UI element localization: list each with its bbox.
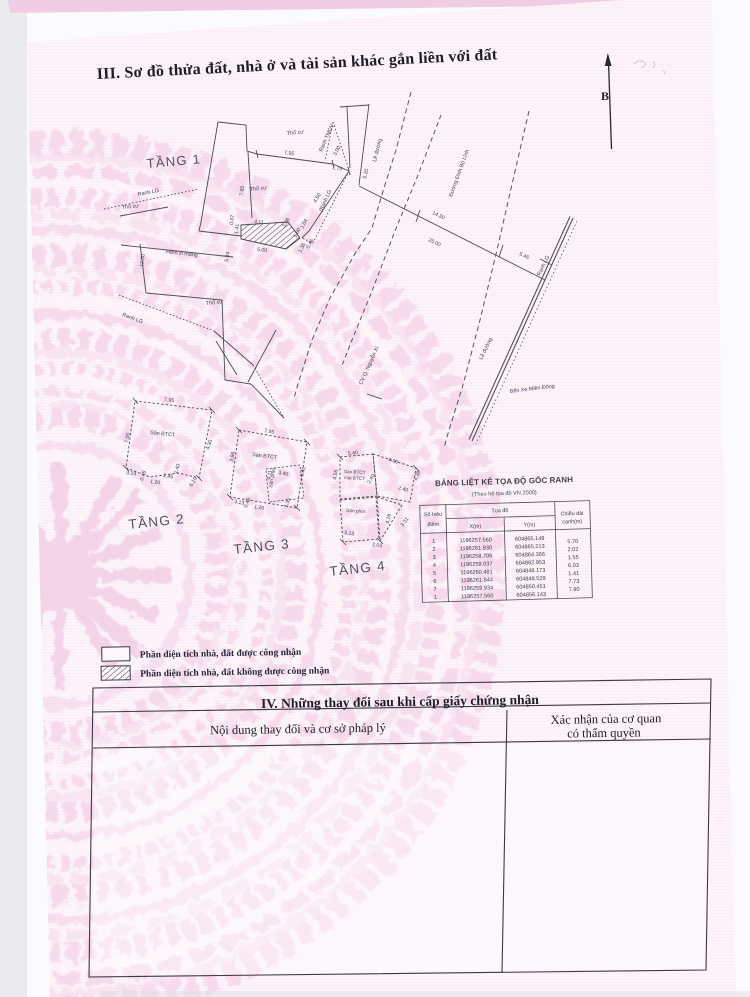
svg-text:1196257.560: 1196257.560 — [461, 593, 493, 600]
svg-text:7.65: 7.65 — [239, 185, 246, 196]
svg-text:7.90: 7.90 — [569, 587, 580, 593]
svg-text:5: 5 — [433, 571, 436, 577]
svg-text:6: 6 — [433, 579, 436, 585]
svg-text:X(m): X(m) — [469, 524, 481, 530]
svg-text:604848.173: 604848.173 — [516, 568, 546, 575]
svg-text:5.00: 5.00 — [257, 247, 268, 254]
svg-text:Sân phơi: Sân phơi — [346, 508, 366, 515]
svg-text:1196261.930: 1196261.930 — [460, 545, 492, 552]
svg-text:0.07: 0.07 — [229, 214, 236, 225]
svg-text:Số hiệu: Số hiệu — [424, 512, 442, 519]
svg-text:604865.149: 604865.149 — [515, 536, 545, 543]
svg-text:1.55: 1.55 — [568, 555, 579, 561]
svg-text:604862.953: 604862.953 — [516, 560, 546, 567]
svg-text:4: 4 — [433, 563, 436, 569]
svg-text:604850.451: 604850.451 — [516, 584, 546, 591]
svg-text:604865.213: 604865.213 — [515, 544, 545, 551]
svg-text:1196257.560: 1196257.560 — [460, 537, 492, 544]
svg-text:604864.366: 604864.366 — [515, 552, 545, 559]
svg-text:1196259.934: 1196259.934 — [461, 585, 493, 592]
svg-text:7.95: 7.95 — [164, 397, 175, 404]
svg-text:6.03: 6.03 — [568, 563, 579, 569]
svg-text:1: 1 — [432, 539, 435, 545]
svg-text:Nội dung thay đổi và cơ sở phá: Nội dung thay đổi và cơ sở pháp lý — [210, 721, 387, 738]
svg-text:2: 2 — [432, 547, 435, 553]
svg-text:1196259.037: 1196259.037 — [460, 561, 492, 568]
svg-text:5.40: 5.40 — [348, 450, 359, 457]
svg-text:1196261.844: 1196261.844 — [461, 577, 493, 584]
svg-text:điểm: điểm — [427, 521, 439, 528]
svg-text:Xác nhận của cơ quan: Xác nhận của cơ quan — [550, 711, 662, 727]
svg-text:1: 1 — [434, 595, 437, 601]
svg-text:4.11: 4.11 — [254, 219, 264, 226]
svg-text:7: 7 — [433, 587, 436, 593]
svg-text:Y(m): Y(m) — [523, 522, 535, 528]
svg-text:Tọa độ: Tọa độ — [491, 508, 508, 514]
svg-text:604848.529: 604848.529 — [516, 576, 546, 583]
svg-text:B: B — [601, 89, 609, 103]
svg-text:1196260.481: 1196260.481 — [460, 569, 492, 576]
svg-text:2.02: 2.02 — [568, 547, 579, 553]
svg-text:Chiều dài: Chiều dài — [561, 511, 584, 518]
svg-text:1.41: 1.41 — [234, 223, 241, 234]
svg-text:1196258.706: 1196258.706 — [460, 553, 492, 560]
svg-text:1.41: 1.41 — [568, 571, 579, 577]
svg-text:cạnh(m): cạnh(m) — [562, 519, 582, 526]
svg-text:có thẩm quyền: có thẩm quyền — [567, 725, 642, 740]
svg-text:7.73: 7.73 — [568, 579, 579, 585]
svg-text:5.70: 5.70 — [567, 539, 578, 545]
svg-text:604856.143: 604856.143 — [516, 592, 546, 599]
svg-text:3: 3 — [433, 555, 436, 561]
